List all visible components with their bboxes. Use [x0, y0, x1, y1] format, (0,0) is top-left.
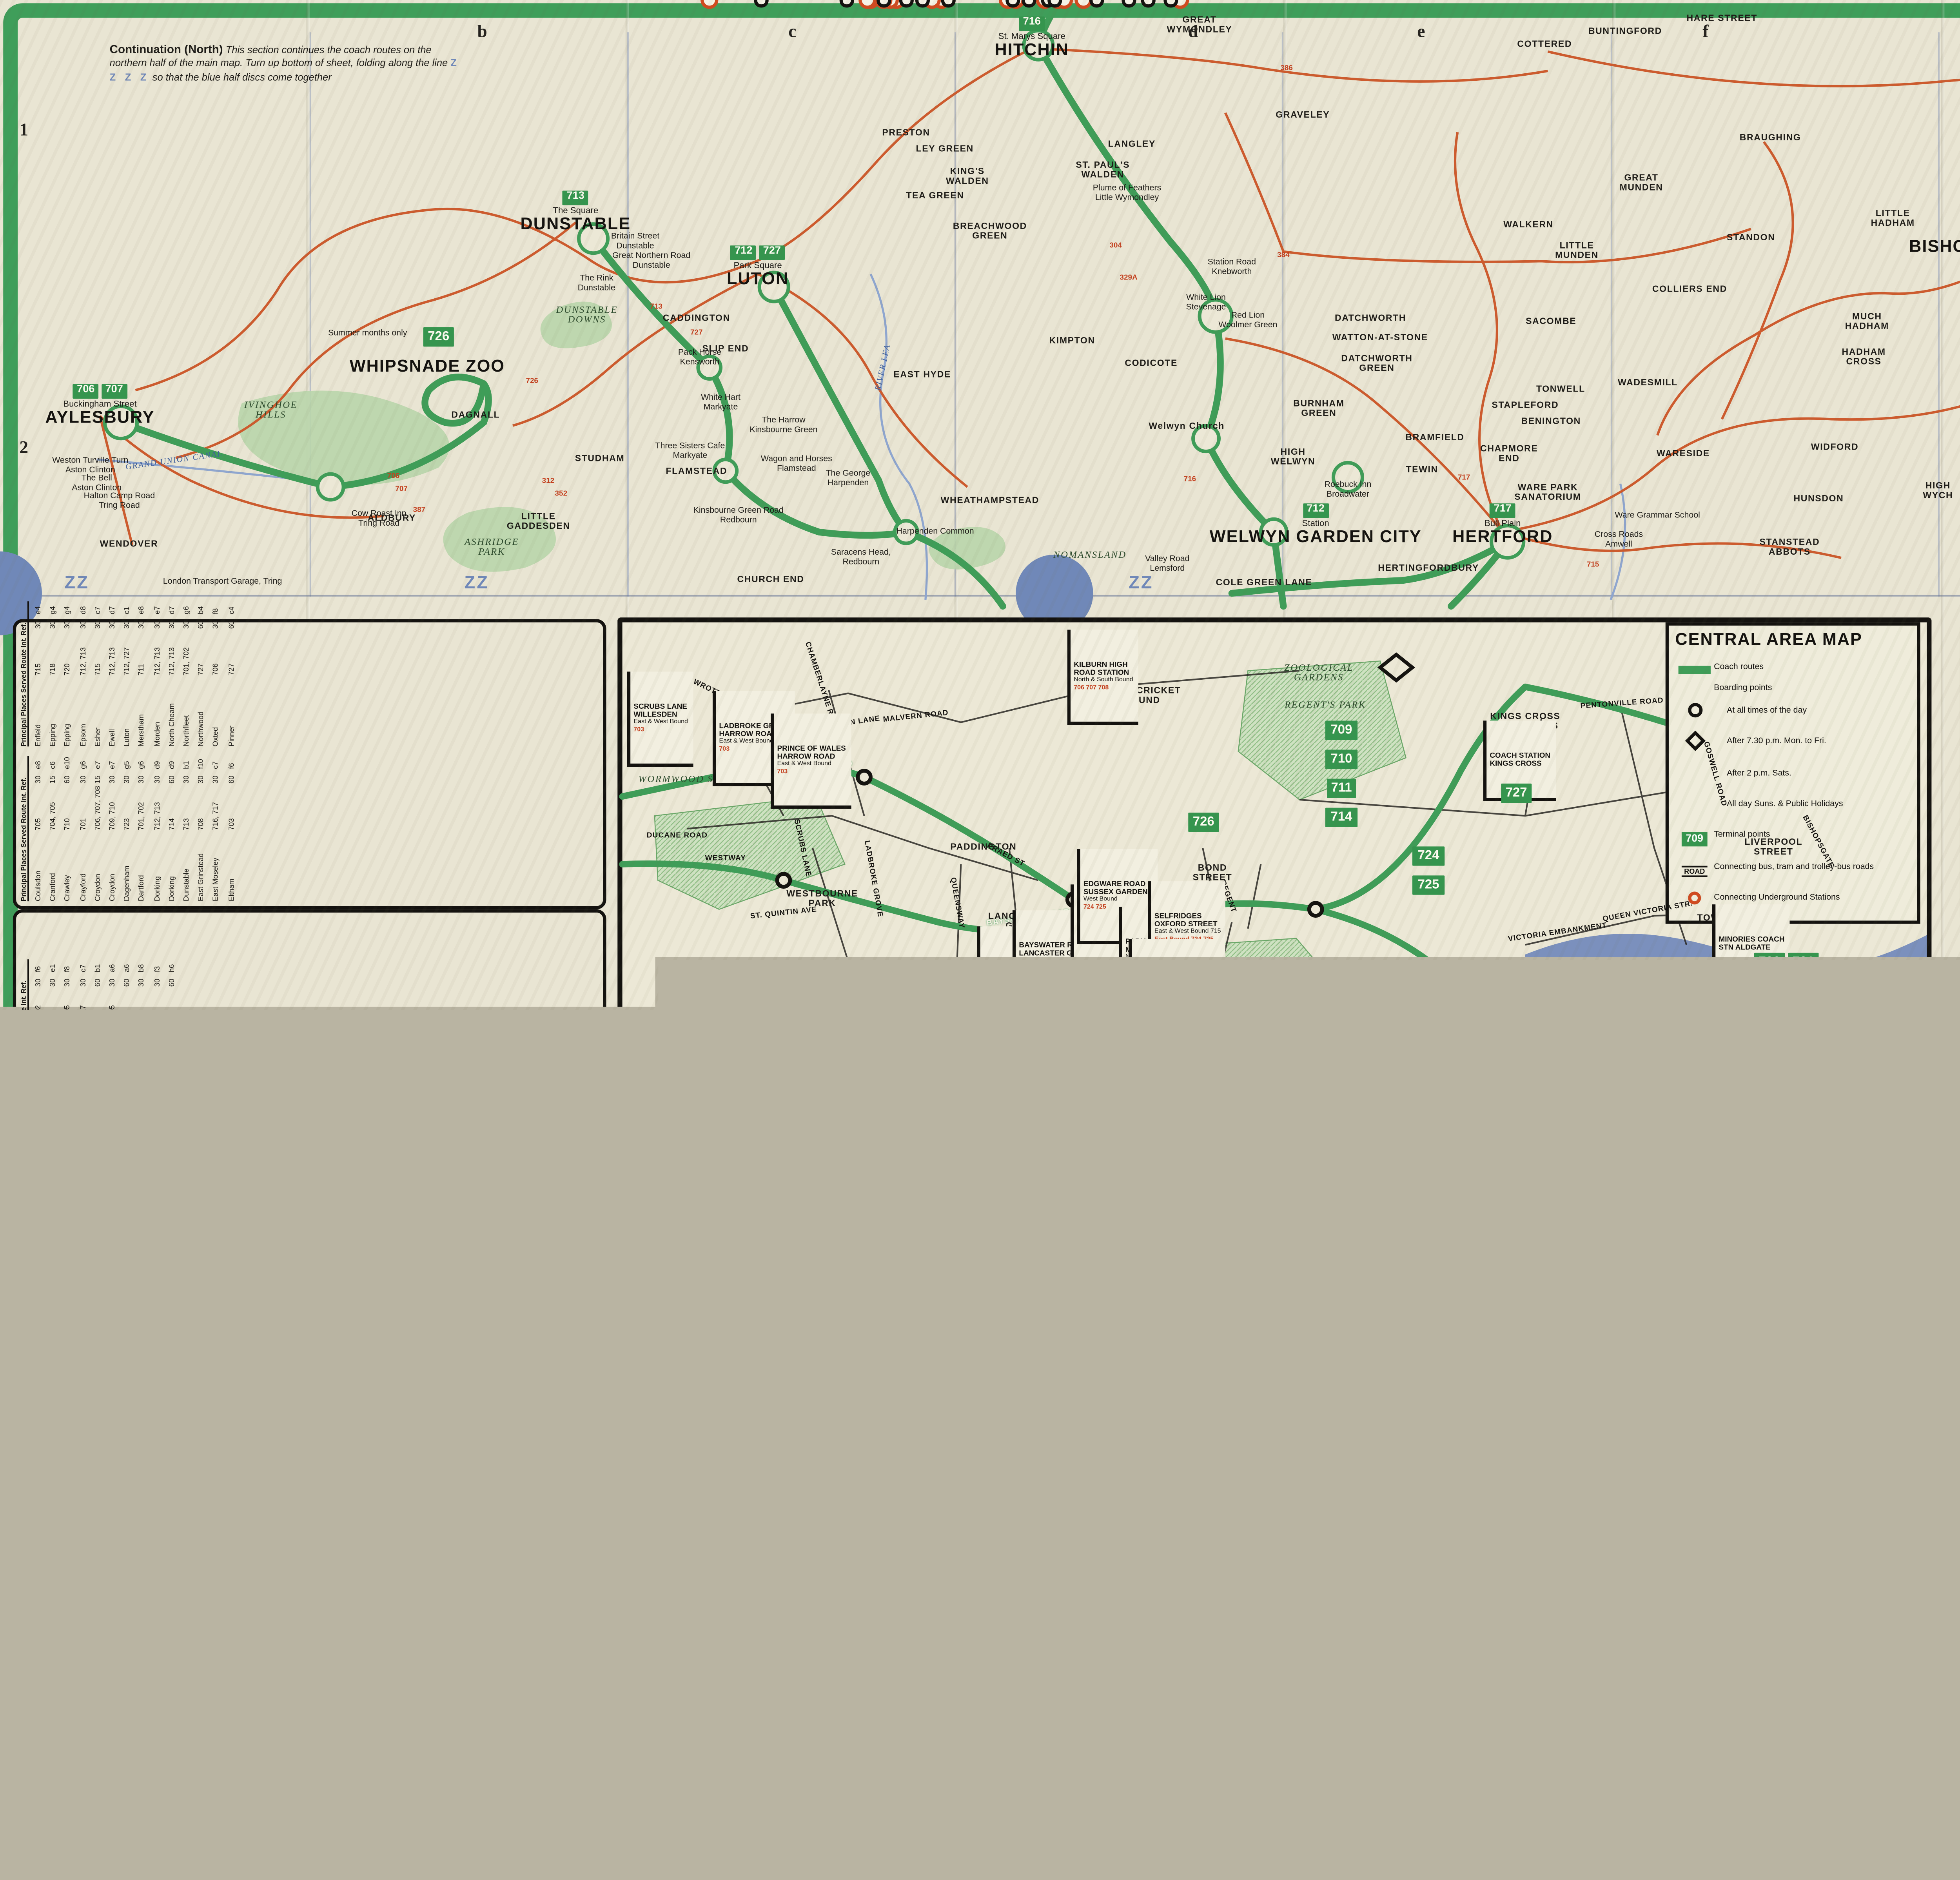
map-place-label: WHEATHAMPSTEAD: [941, 497, 1039, 506]
map-place-label: LITTLE HADHAM: [1871, 210, 1915, 229]
index-row: Oxted70630f8: [209, 601, 223, 746]
map-place-label: HACKHURST DOWNS: [764, 1348, 829, 1367]
map-place-label: MUCH HADHAM: [1845, 313, 1889, 332]
map-place-label: MERROW DOWNS: [523, 1327, 612, 1337]
boarding-point-dot: [899, 0, 913, 7]
index-header: Principal Places Served Route Int. Ref.: [19, 756, 29, 901]
legend-symbol: [1687, 702, 1702, 717]
map-place-label: SLIP END: [702, 345, 749, 355]
map-place-label: PRESTON: [882, 129, 930, 139]
map-place-label: Blue Anchor Blindley Heath: [1534, 1435, 1588, 1454]
road-number: 410 411: [1406, 1334, 1432, 1343]
map-place-label: THE CHART: [1769, 1264, 1804, 1283]
index-row: Whipsnade72660b1: [90, 959, 105, 1104]
map-place-label: WOTTON COMMON: [859, 1528, 908, 1548]
map-place-label: DUNSTABLE DOWNS: [556, 306, 618, 325]
index-row: Morden712, 71330e7: [149, 601, 164, 746]
index-row: Enfield71530e4: [31, 601, 45, 746]
boarding-point-callout: ECCLESTON BRIDGE VICTORIANorth & South B…: [1138, 1045, 1226, 1154]
map-place-label: CODICOTE: [1125, 359, 1178, 369]
map-place-label: NOMANSLAND: [1053, 552, 1126, 561]
map-place-label: CHAPMORE END: [1480, 445, 1538, 464]
boarding-point-dot: [754, 0, 768, 7]
legend-item: Boarding points: [1675, 684, 1910, 694]
index-row: Luton712, 72730c1: [120, 601, 134, 746]
town-label: 716 St. Marys Square HITCHIN: [995, 4, 1069, 61]
map-place-label: WATTON-AT-STONE: [1332, 334, 1428, 343]
town-label: EAST GRINSTEAD De La Ware Road 708: [1690, 1709, 1851, 1767]
map-place-label: REIGATE HEATH: [1109, 1316, 1154, 1335]
map-place-label: LANGLEY: [1108, 140, 1156, 150]
street-or-place-label: CROMWELL ROAD: [918, 1125, 991, 1133]
boarding-point-dot: [1163, 0, 1177, 7]
map-place-label: DAGNALL: [451, 411, 500, 421]
map-place-label: GRAVELEY: [1276, 111, 1330, 121]
map-place-label: Welwyn Church: [1149, 423, 1225, 432]
places-index-panel-2: Principal Places Served Route Int. Ref. …: [13, 909, 606, 1267]
map-place-label: MARSH GREEN: [1836, 1508, 1911, 1517]
town-label: 712727 Park Square LUTON: [727, 232, 789, 290]
map-place-label: LIMPSFIELD COMMON: [1680, 1267, 1745, 1287]
map-place-label: DORMANS LAND: [1746, 1556, 1828, 1566]
legend-symbol: 709: [1682, 833, 1707, 847]
boarding-point-callout: SCRUBS LANE WILLESDENEast & West Bound70…: [627, 671, 693, 766]
map-place-label: IFIELD: [1212, 1733, 1245, 1743]
map-place-label: Earlswood Station: [1295, 1366, 1362, 1376]
map-place-label: Three Sisters Cafe Markyate: [655, 442, 725, 461]
road-number: 387: [413, 505, 426, 514]
map-place-label: CADDINGTON: [663, 314, 730, 324]
map-place-label: BALDWINS HILL: [1653, 1675, 1733, 1685]
town-label: GUILDFORD Horse and Groom 715: [317, 1303, 425, 1360]
index-row: Dartford701, 70230g6: [134, 756, 149, 901]
map-place-label: RANMORE COMMON: [700, 1293, 751, 1312]
map-place-label: The Harrow Kinsbourne Green: [750, 416, 817, 435]
town-label: 706707 Buckingham Street AYLESBURY: [45, 371, 154, 428]
map-place-label: IVINGHOE HILLS: [244, 401, 298, 421]
index-row: Epsom712, 71330d8: [75, 601, 90, 746]
map-place-label: Salfords Church: [1357, 1421, 1417, 1430]
map-place-label: Station Road Knebworth: [1208, 258, 1256, 277]
town-label: 717 Bull Plain HERTFORD: [1452, 490, 1553, 548]
road-number: 312: [542, 476, 555, 485]
map-place-label: STUDHAM: [575, 455, 625, 465]
street-or-place-label: EARLS COURT EXHIBITION: [873, 1193, 946, 1212]
map-place-label: The Bell Aston Clinton: [72, 474, 122, 493]
index-row: Croydon706, 707, 70815e7: [90, 756, 105, 901]
map-place-label: Godstone Station: [1525, 1330, 1590, 1340]
map-place-label: ALBURY DOWNS: [530, 1359, 612, 1369]
map-place-label: WARESIDE: [1657, 450, 1710, 460]
road-number: 430: [1397, 1360, 1409, 1368]
town-label: 720 Bricklayers Arms BISHOPS STORTFORD: [1909, 200, 1960, 258]
index-row: North Cheam712, 71330d7: [164, 601, 179, 746]
map-place-label: STAPLEFORD: [1492, 401, 1559, 411]
map-place-label: BEARE GREEN: [934, 1562, 1007, 1572]
map-place-label: CROCKHAMHILL COMMON: [1882, 1264, 1960, 1283]
index-row: Waltham Abbey72030f4: [120, 1114, 134, 1259]
map-place-label: STANSTEAD ABBOTS: [1760, 539, 1820, 558]
boarding-point-dot: [941, 0, 955, 7]
map-place-label: BRAMFIELD: [1405, 434, 1464, 443]
index-row: Dorking712, 71330d9: [149, 756, 164, 901]
road-number: 439: [984, 1321, 996, 1330]
map-place-label: DOG KENNEL GREEN: [699, 1321, 804, 1330]
map-place-label: THREE BRIDGES: [1313, 1785, 1396, 1795]
map-place-label: GREAT WYMONDLEY: [1167, 16, 1232, 35]
cover-panel: GREEN LINE COACH MAP ISSUED FREENo. 1, 1…: [1954, 632, 1960, 922]
map-place-label: GREAT MUNDEN: [1620, 174, 1663, 193]
index-row: Eltham70360f6: [223, 756, 238, 901]
road-number: 439: [1293, 1524, 1306, 1533]
map-place-label: Povey Cross: [1230, 1601, 1278, 1611]
map-place-label: CHARLWOOD: [1184, 1633, 1250, 1643]
street-or-place-label: VICTORIA: [1314, 1195, 1362, 1205]
map-place-label: WADESMILL: [1618, 379, 1678, 389]
map-place-label: SHERE: [757, 1392, 791, 1401]
map-place-label: KINGSFOLD: [989, 1756, 1048, 1766]
boarding-point-dot: [840, 0, 853, 7]
route-box-row: 706707: [72, 371, 129, 399]
map-place-label: ABINGER: [818, 1480, 865, 1490]
map-place-label: COTTERED: [1517, 40, 1572, 50]
index-row: Esher71530c7: [90, 601, 105, 746]
map-place-label: KIMPTON: [1049, 337, 1095, 347]
map-place-label: TINSLEY GREEN: [1346, 1696, 1388, 1715]
general-information-panel: GENERAL INFORMATION: [1943, 942, 1960, 1261]
boarding-point-dot: [1089, 0, 1103, 7]
boarding-point-dot: [1141, 0, 1155, 7]
map-place-label: BUNTINGFORD: [1588, 27, 1662, 37]
route-terminal-box: 726: [422, 319, 456, 348]
map-place-label: GOMSHALL: [797, 1398, 854, 1408]
map-place-label: TONWELL: [1536, 385, 1585, 395]
index-row: Crayford70130g6: [75, 756, 90, 901]
map-place-label: MERROW: [533, 1274, 579, 1283]
map-place-label: ALBURY HEATH: [621, 1417, 662, 1436]
road-number: 715: [1587, 560, 1599, 568]
boarding-point-dot: [1022, 0, 1035, 7]
index-row: Wormley71730f3: [149, 959, 164, 1104]
map-place-label: PEASLAKE: [724, 1450, 778, 1459]
index-row: Ewell712, 71330d7: [105, 601, 120, 746]
index-row: Northwood72760b4: [194, 601, 209, 746]
street-or-place-label: ZOOLOGICAL GARDENS: [1284, 664, 1354, 684]
map-place-label: Cross Roads Amwell: [1595, 530, 1643, 550]
map-place-label: HIGH WELWYN: [1271, 448, 1315, 467]
map-place-label: HARE STREET: [1686, 15, 1757, 24]
map-place-label: OXTED: [1615, 1266, 1649, 1276]
index-band: Principal Places Served Route Int. Ref. …: [16, 1109, 197, 1264]
map-place-label: FLAMSTEAD: [666, 468, 727, 477]
map-place-label: FOREST ROW: [1791, 1830, 1859, 1840]
map-place-label: WALKERN: [1503, 221, 1553, 230]
town-label: DORKING Bus Station 712713714: [941, 1334, 1026, 1391]
road-number: 726: [526, 376, 539, 385]
road-number: 329A: [1120, 273, 1138, 281]
map-place-label: LITTLE GADDESDEN: [507, 513, 570, 532]
boarding-point-callout: BRICKLAYERS ARMS OLD KENT ROADEast & Wes…: [1683, 1036, 1771, 1131]
map-place-label: BURNHAM GREEN: [1293, 400, 1344, 419]
map-place-label: White Lion Lowfield Heath: [1240, 1686, 1295, 1706]
places-index-panel-1: Principal Places Served Route Int. Ref. …: [13, 619, 606, 909]
map-place-label: EDENBRIDGE: [1824, 1454, 1891, 1464]
map-place-label: LITTLE MUNDEN: [1555, 242, 1599, 261]
terminal-point-boxes: 724725: [1396, 838, 1461, 896]
boarding-point-dot: [1047, 0, 1061, 7]
map-place-label: SMALLFIELD: [1439, 1579, 1502, 1588]
map-place-label: NEWDIGATE: [1002, 1595, 1062, 1604]
index-row: East Grinstead70830f10: [194, 756, 209, 901]
map-place-label: Valley Road Lemsford: [1145, 555, 1189, 574]
route-box-row: 712: [1301, 490, 1330, 518]
boarding-point-callout: KILBURN HIGH ROAD STATIONNorth & South B…: [1067, 630, 1138, 724]
index-row: Northfleet701, 70230g6: [179, 601, 194, 746]
route-box-row: 711: [1063, 1367, 1091, 1394]
index-row: Epping71830g4: [45, 601, 60, 746]
boarding-point-dot: [1122, 0, 1135, 7]
route-box-row: 712713714: [941, 1362, 1026, 1389]
index-row: Dorking71460d9: [164, 756, 179, 901]
map-place-label: SIDLOW: [1318, 1530, 1358, 1540]
street-or-place-label: KENSINGTON (OLYMPIA): [761, 1153, 883, 1163]
street-or-place-label: ▲: [982, 1104, 991, 1114]
index-row: Coulsdon70530e8: [31, 756, 45, 901]
road-number: 716: [1184, 475, 1196, 483]
road-number: 715: [506, 1273, 519, 1281]
map-place-label: HIGH WYCH: [1923, 482, 1953, 501]
street-or-place-label: PADDINGTON: [950, 843, 1016, 853]
boarding-point-dot: [915, 0, 929, 7]
index-row: Upminster722, 72360g5: [75, 1114, 90, 1259]
legend-item: All day Suns. & Public Holidays: [1675, 790, 1910, 819]
map-place-label: SUTTON: [794, 1450, 835, 1459]
index-row: Welling701, 70230f6: [31, 959, 45, 1104]
map-place-label: ASHRIDGE PARK: [465, 539, 519, 558]
map-place-label: Plume of Feathers Little Wymondley: [1093, 184, 1161, 203]
map-place-label: DATCHWORTH GREEN: [1341, 355, 1412, 374]
index-row: Dunstable71330b1: [179, 756, 194, 901]
map-place-label: Cross Roads Newchapel: [1511, 1564, 1559, 1583]
map-place-label: London Transport Garage, Tring: [163, 577, 282, 587]
map-place-label: IRONS BOTTOM: [1164, 1466, 1241, 1475]
road-number: 384: [1277, 251, 1290, 259]
map-place-label: NETLEY HEATH: [676, 1357, 717, 1377]
legend-item: Connecting Underground Stations: [1675, 884, 1910, 913]
map-place-label: Summer months only: [328, 329, 407, 339]
map-place-label: SHALFORD: [543, 1427, 599, 1437]
map-place-label: The Star Felbridge: [1563, 1686, 1597, 1706]
index-band: Principal Places Served Route Int. Ref. …: [16, 955, 197, 1109]
map-place-label: Post Office Horley: [1360, 1541, 1401, 1561]
terminal-point-boxes: 727: [1499, 775, 1532, 804]
street-or-place-label: LAMBETH NORTH: [1549, 1051, 1598, 1071]
coach-map-sheet: bcdefgh abcdefgh 12910 12910 ZZZZZZZZZZ …: [0, 0, 1960, 1880]
road-number: 304: [1109, 241, 1122, 249]
road-number: 707: [395, 485, 408, 493]
route-box-row: 710: [1211, 1793, 1240, 1820]
map-place-label: NUTFIELD: [1436, 1333, 1486, 1343]
map-place-label: BRAUGHING: [1740, 134, 1801, 143]
map-place-label: COLE GREEN LANE: [1216, 579, 1312, 589]
index-row: Woking71530b8: [134, 959, 149, 1104]
index-row: Uxbridge724, 72530b5: [90, 1114, 105, 1259]
index-row: Wrotham70360h6: [164, 959, 179, 1104]
road-number: 386: [1280, 64, 1293, 72]
index-row: Merstham71130e8: [134, 601, 149, 746]
legend-symbol: ROAD: [1681, 866, 1708, 877]
index-row: Croydon709, 71030e7: [105, 756, 120, 901]
map-place-label: Britain Street Dunstable: [611, 232, 659, 251]
terminal-point-boxes: 709710711714: [1309, 713, 1374, 829]
index-row: Epping72030g4: [60, 601, 75, 746]
index-row: Windsor71860a6: [120, 959, 134, 1104]
map-place-label: COPTHORNE: [1427, 1672, 1491, 1682]
map-place-label: SACOMBE: [1526, 318, 1576, 327]
road-number: 412 – 425: [795, 1387, 828, 1395]
map-place-label: HADHAM CROSS: [1842, 348, 1886, 367]
legend-title: CENTRAL AREA MAP: [1675, 630, 1910, 650]
index-header: Principal Places Served Route Int. Ref.: [19, 601, 29, 746]
index-band: Principal Places Served Route Int. Ref. …: [16, 751, 241, 906]
street-or-place-label: WATERLOO: [1516, 1011, 1573, 1021]
map-place-label: WOTTON: [836, 1424, 880, 1434]
map-place-label: WESTCOTT: [859, 1370, 915, 1380]
map-place-label: HERTINGFORDBURY: [1378, 564, 1479, 574]
map-place-label: CHURCH END: [737, 575, 804, 585]
legend-symbol: [1679, 666, 1711, 674]
road-number: 708: [1464, 1315, 1477, 1323]
street-or-place-label: WESTWAY: [705, 854, 746, 862]
street-or-place-label: REGENT'S PARK: [1285, 701, 1366, 711]
road-number: 433: [845, 1347, 858, 1355]
boarding-point-dot: [1005, 0, 1019, 7]
map-place-label: TURNERS HILL: [1446, 1820, 1520, 1830]
index-header: Principal Places Served Route Int. Ref.: [19, 1114, 29, 1259]
index-row: Windsor704, 70530a6: [105, 959, 120, 1104]
map-place-label: LEY GREEN: [916, 145, 974, 155]
index-row: Virginia Water701, 70230b7: [105, 1114, 120, 1259]
map-place-label: Great Northern Road Dunstable: [612, 252, 690, 271]
map-place-label: Halton Camp Road Tring Road: [84, 492, 155, 511]
index-row: Cranford704, 70515c6: [45, 756, 60, 901]
road-number: 706: [387, 472, 400, 480]
map-place-label: STANDON: [1727, 234, 1775, 243]
map-place-label: BETCHWORTH: [977, 1306, 1049, 1316]
legend-item: At all times of the day: [1675, 696, 1910, 725]
legend-symbol: [1684, 731, 1705, 751]
index-row: Crawley71060e10: [60, 756, 75, 901]
map-place-label: DATCHWORTH: [1335, 314, 1406, 324]
index-row: Walton71530c7: [149, 1114, 164, 1259]
map-place-label: EAST HYDE: [893, 371, 951, 381]
town-label: 713 The Square DUNSTABLE: [521, 178, 631, 235]
index-row: Tunbridge Wells70430f8: [60, 1114, 75, 1259]
map-place-label: Red Lion Woolmer Green: [1218, 311, 1277, 330]
route-box-row: 717: [1488, 490, 1517, 518]
index-row: Ware71730e2: [164, 1114, 179, 1259]
route-box-row: 712727: [730, 232, 786, 260]
boarding-point-callout: ROYAL ALBERT HALLEast & West Bound701 70…: [1035, 985, 1125, 1079]
map-place-label: ALDBURY: [368, 514, 416, 524]
map-place-label: PARKGATE: [1121, 1546, 1175, 1556]
map-place-label: HUNSDON: [1794, 495, 1844, 505]
index-band: Principal Places Served Route Int. Ref. …: [16, 597, 241, 751]
map-place-label: The George Harpenden: [826, 469, 870, 488]
index-row: Westerham704, 70530f8: [60, 959, 75, 1104]
map-place-label: TEWIN: [1406, 466, 1438, 476]
index-header: Principal Places Served Route Int. Ref.: [19, 959, 29, 1104]
town-label: REIGATE London Transport Garage 711: [1027, 1339, 1127, 1396]
map-place-label: Kinsbourne Green Road Redbourn: [693, 506, 784, 525]
map-place-label: HOLLAND: [1714, 1311, 1762, 1321]
road-number: 352: [555, 489, 568, 497]
street-or-place-label: ▲: [963, 1188, 972, 1198]
map-place-label: NEWLANDS CORNER: [610, 1341, 667, 1361]
map-place-label: BENINGTON: [1521, 417, 1581, 427]
central-map-legend: CENTRAL AREA MAP Coach routes Boarding p…: [1666, 622, 1920, 923]
street-or-place-label: WESTBOURNE PARK: [786, 890, 858, 909]
road-number: 424: [1371, 1402, 1383, 1410]
road-number: 717: [1458, 473, 1470, 481]
index-row: Weybridge716, 71730c7: [75, 959, 90, 1104]
index-row: Tonbridge70430f8: [31, 1114, 45, 1259]
info-heading: GENERAL INFORMATION: [1943, 942, 1957, 1261]
route-box-row: 715: [357, 1331, 385, 1359]
map-place-label: WENDOVER: [100, 540, 158, 550]
map-place-label: LEIGH: [1174, 1433, 1205, 1443]
index-row: East Moseley716, 71730c7: [209, 756, 223, 901]
index-row: Watford706, 707, 70815c4: [179, 1114, 194, 1259]
map-place-label: The Rink Dunstable: [578, 274, 615, 293]
map-place-label: White Lion Stevenage: [1186, 294, 1226, 313]
street-or-place-label: THAMES: [1659, 959, 1701, 969]
map-place-label: HURT WOOD: [722, 1495, 787, 1504]
map-place-label: BLACKHEATH: [590, 1462, 661, 1472]
terminal-point-boxes: 720721722723: [1751, 945, 1822, 1003]
route-box-row: 713: [561, 178, 590, 205]
map-place-label: ALBURY: [608, 1398, 650, 1408]
map-place-label: Market Place Redhill: [1339, 1283, 1388, 1303]
street-or-place-label: LIVERPOOL STREET: [1744, 838, 1802, 858]
route-box-row: 708: [1756, 1738, 1784, 1765]
map-place-label: DUXHURST: [1262, 1492, 1318, 1501]
legend-item: Coach routes: [1675, 653, 1910, 682]
map-place-label: Ware Grammar School: [1615, 511, 1700, 521]
boarding-point-callout: PRINCE OF WALES HARROW ROADEast & West B…: [771, 713, 851, 808]
index-row: Dagenham72330g5: [120, 756, 134, 901]
road-number: 447: [1348, 1299, 1361, 1307]
road-number: 406 414: [1373, 1315, 1400, 1323]
map-place-label: CAPEL: [1010, 1669, 1044, 1679]
map-place-label: LEITH HILL: [895, 1579, 949, 1588]
index-row: Pinner72760c4: [223, 601, 238, 746]
road-number: 727: [690, 328, 703, 336]
map-place-label: Harpenden Common: [897, 527, 974, 537]
map-place-label: THE HOLMWOOD: [978, 1486, 1066, 1496]
index-row: Welwyn Gdn City71230e1: [45, 959, 60, 1104]
map-place-label: Anglefield Corner: [1512, 1379, 1577, 1388]
street-or-place-label: DUCANE ROAD: [647, 831, 708, 839]
town-label: 712 Station WELWYN GARDEN CITY: [1210, 490, 1422, 548]
index-row: Tring706, 70730a2: [45, 1114, 60, 1259]
town-label: WHIPSNADE ZOO: [350, 359, 505, 376]
street-or-place-label: BOND STREET: [1193, 864, 1232, 884]
map-place-label: CROCKHAM HILL: [1873, 1295, 1958, 1305]
map-place-label: HOLMBURY ST. MARY: [807, 1506, 864, 1525]
road-number: 713: [650, 302, 662, 310]
map-place-label: FRIDAY STREET: [847, 1454, 926, 1464]
